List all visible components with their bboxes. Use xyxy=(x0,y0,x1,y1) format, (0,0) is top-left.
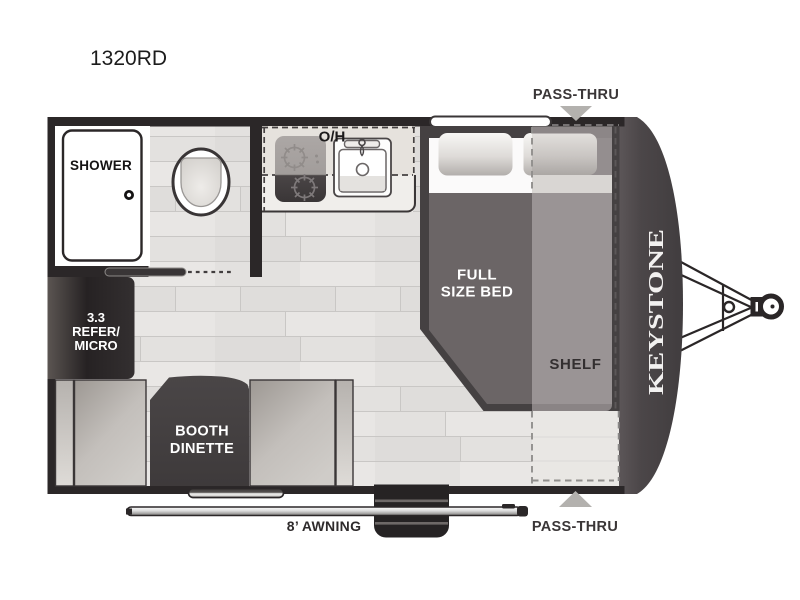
svg-text:1320RD: 1320RD xyxy=(90,47,167,70)
svg-text:8’ AWNING: 8’ AWNING xyxy=(287,518,362,534)
svg-text:PASS-THRU: PASS-THRU xyxy=(532,519,618,535)
svg-text:REFER/: REFER/ xyxy=(72,324,120,339)
svg-text:SIZE BED: SIZE BED xyxy=(441,284,513,301)
svg-text:DINETTE: DINETTE xyxy=(170,441,234,457)
svg-text:MICRO: MICRO xyxy=(74,338,117,353)
svg-text:KEYSTONE: KEYSTONE xyxy=(644,229,668,395)
svg-text:PASS-THRU: PASS-THRU xyxy=(533,87,619,103)
svg-text:O/H: O/H xyxy=(319,129,346,146)
svg-text:SHELF: SHELF xyxy=(549,356,601,373)
svg-text:FULL: FULL xyxy=(457,267,497,284)
svg-text:SHOWER: SHOWER xyxy=(70,158,132,173)
svg-text:BOOTH: BOOTH xyxy=(175,424,229,440)
svg-text:3.3: 3.3 xyxy=(87,310,105,325)
